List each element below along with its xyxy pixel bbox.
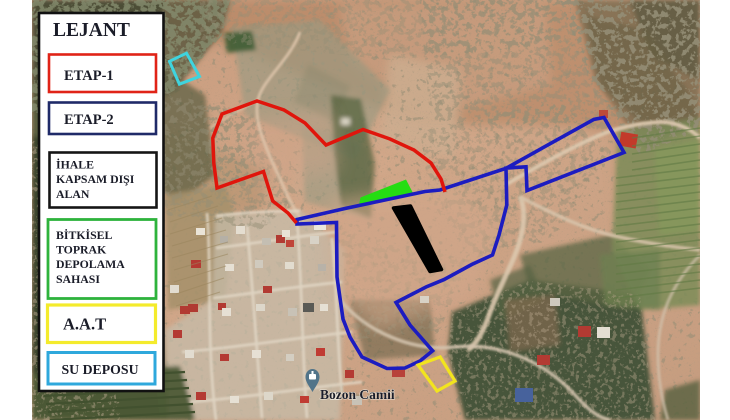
svg-text:ALAN: ALAN (56, 187, 90, 201)
svg-text:BİTKİSEL: BİTKİSEL (56, 228, 113, 242)
svg-text:A.A.T: A.A.T (63, 315, 106, 334)
svg-text:LEJANT: LEJANT (53, 20, 130, 41)
svg-text:Bozon Camii: Bozon Camii (320, 387, 395, 402)
svg-text:KAPSAM DIŞI: KAPSAM DIŞI (56, 172, 135, 186)
svg-text:SAHASI: SAHASI (56, 272, 100, 286)
svg-text:ETAP-1: ETAP-1 (64, 68, 114, 84)
svg-text:DEPOLAMA: DEPOLAMA (56, 257, 125, 271)
svg-text:TOPRAK: TOPRAK (56, 243, 107, 257)
svg-text:ETAP-2: ETAP-2 (64, 112, 114, 128)
svg-text:İHALE: İHALE (56, 158, 94, 172)
svg-text:SU DEPOSU: SU DEPOSU (62, 362, 139, 377)
